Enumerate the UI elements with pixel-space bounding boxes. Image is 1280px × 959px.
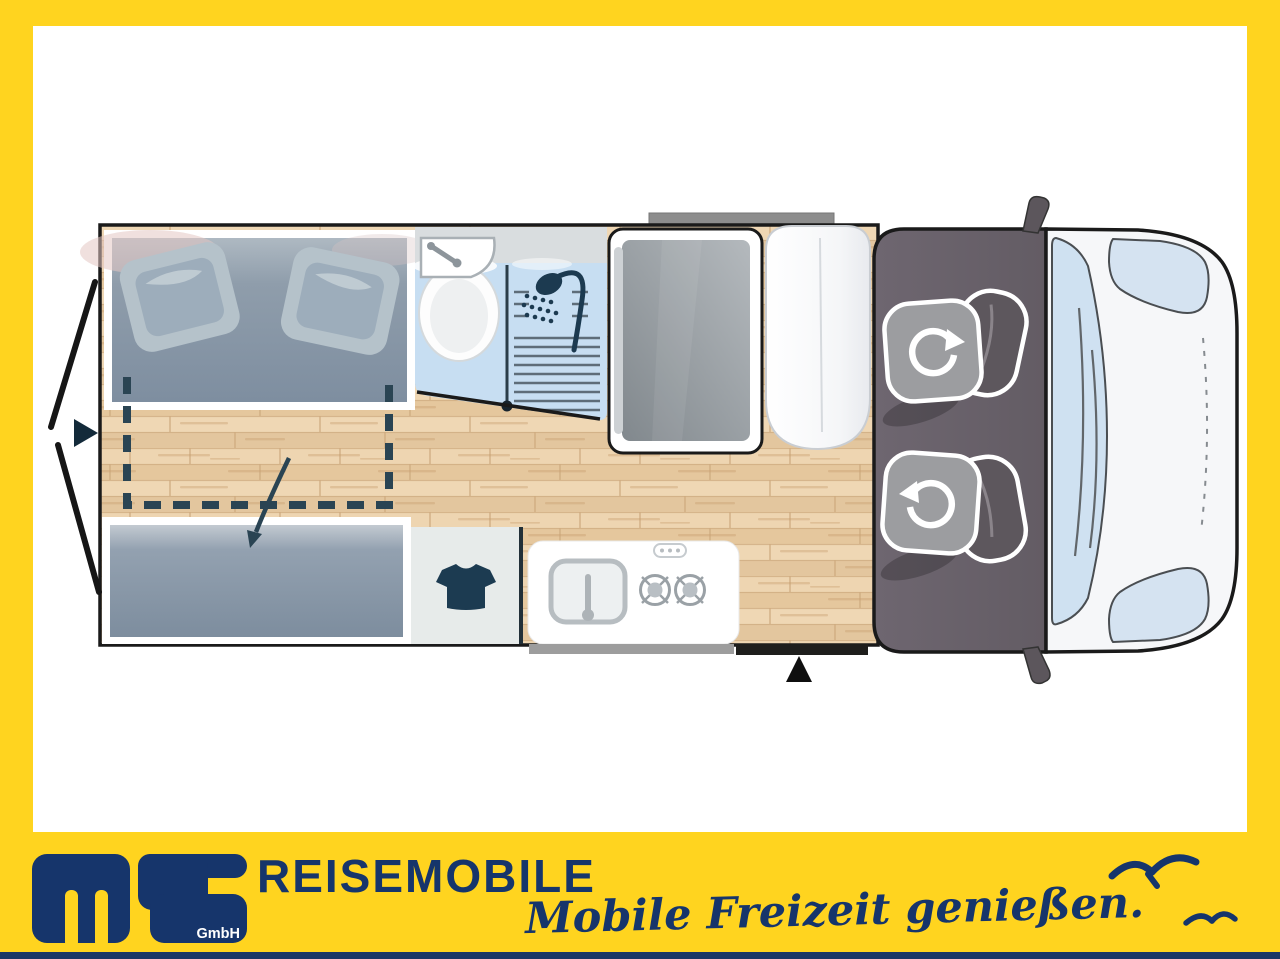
kitchen xyxy=(528,541,739,644)
gas-burner-icon xyxy=(641,576,670,605)
cab-floor xyxy=(874,229,1046,652)
wardrobe xyxy=(411,527,523,644)
rear-door-triangle-icon xyxy=(74,419,98,447)
bathroom xyxy=(413,227,607,420)
ms-logo: GmbH xyxy=(32,854,247,948)
seagull-icon xyxy=(1186,914,1235,923)
vehicle-front xyxy=(1046,229,1237,652)
white-storage-unit xyxy=(766,226,870,449)
entry-step xyxy=(529,644,734,654)
floorplan-graphic: GmbH xyxy=(0,0,1280,959)
control-pill-icon xyxy=(654,544,686,557)
rear-bed xyxy=(80,230,432,410)
dealer-flyer-page: { "page": { "background_yellow": "#FFD41… xyxy=(0,0,1280,959)
entry-door-triangle-icon xyxy=(786,656,812,682)
entry-door xyxy=(736,644,868,655)
footer-strip xyxy=(0,952,1280,959)
logo-sub-text: GmbH xyxy=(197,926,241,942)
tall-cabinet xyxy=(609,229,762,453)
